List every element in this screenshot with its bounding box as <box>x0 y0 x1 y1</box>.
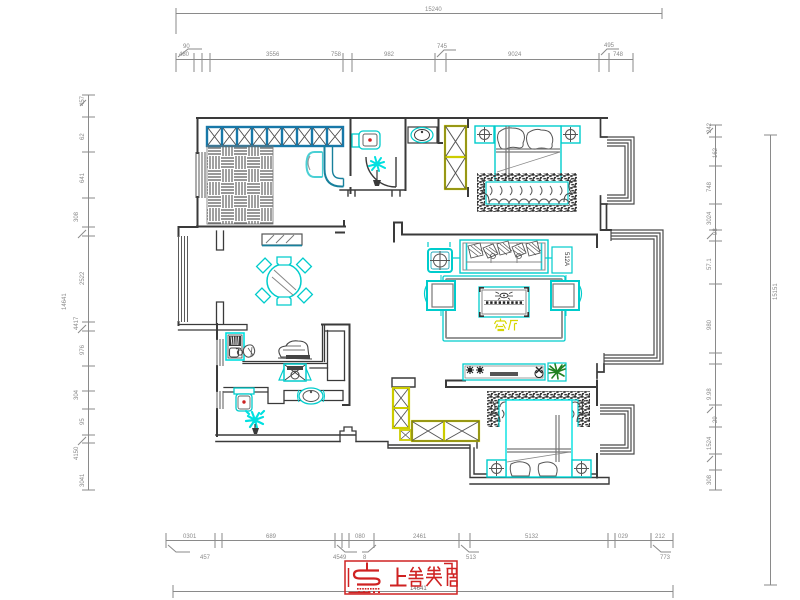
svg-text:308: 308 <box>707 474 713 485</box>
svg-text:480: 480 <box>179 52 190 58</box>
svg-text:98: 98 <box>713 228 719 235</box>
svg-text:689: 689 <box>266 534 277 540</box>
svg-text:4417: 4417 <box>74 316 80 330</box>
svg-text:3041: 3041 <box>80 473 86 487</box>
svg-text:4549: 4549 <box>333 555 347 561</box>
svg-text:242: 242 <box>707 122 713 133</box>
svg-text:2461: 2461 <box>413 534 427 540</box>
svg-text:14641: 14641 <box>410 586 427 592</box>
svg-text:308: 308 <box>74 211 80 222</box>
svg-text:304: 304 <box>74 389 80 400</box>
svg-text:95: 95 <box>80 418 86 425</box>
svg-text:15151: 15151 <box>773 283 779 300</box>
svg-text:62: 62 <box>80 133 86 140</box>
svg-text:745: 745 <box>437 44 448 50</box>
svg-text:14641: 14641 <box>62 293 68 310</box>
svg-text:029: 029 <box>618 534 629 540</box>
svg-text:980: 980 <box>707 319 713 330</box>
svg-text:162: 162 <box>713 147 719 158</box>
svg-text:57.1: 57.1 <box>707 258 713 270</box>
svg-text:15240: 15240 <box>425 7 442 13</box>
svg-text:457: 457 <box>200 555 211 561</box>
svg-text:3556: 3556 <box>266 52 280 58</box>
svg-text:641: 641 <box>80 172 86 183</box>
svg-text:748: 748 <box>613 52 624 58</box>
svg-text:976: 976 <box>80 344 86 355</box>
svg-text:9.98: 9.98 <box>707 388 713 400</box>
svg-text:4150: 4150 <box>74 446 80 460</box>
svg-text:2522: 2522 <box>80 271 86 285</box>
svg-text:982: 982 <box>384 52 395 58</box>
svg-text:5132: 5132 <box>525 534 539 540</box>
svg-text:212: 212 <box>655 534 666 540</box>
svg-text:758: 758 <box>331 52 342 58</box>
svg-text:457: 457 <box>80 95 86 106</box>
svg-text:0301: 0301 <box>183 534 197 540</box>
svg-text:90: 90 <box>183 44 190 50</box>
svg-text:080: 080 <box>355 534 366 540</box>
svg-text:512A: 512A <box>563 252 569 266</box>
svg-text:1524: 1524 <box>707 436 713 450</box>
svg-text:773: 773 <box>660 555 671 561</box>
svg-text:513: 513 <box>466 555 477 561</box>
svg-text:29: 29 <box>713 416 719 423</box>
svg-text:748: 748 <box>707 181 713 192</box>
svg-text:495: 495 <box>604 43 615 49</box>
svg-text:3024: 3024 <box>707 211 713 225</box>
svg-text:9024: 9024 <box>508 52 522 58</box>
